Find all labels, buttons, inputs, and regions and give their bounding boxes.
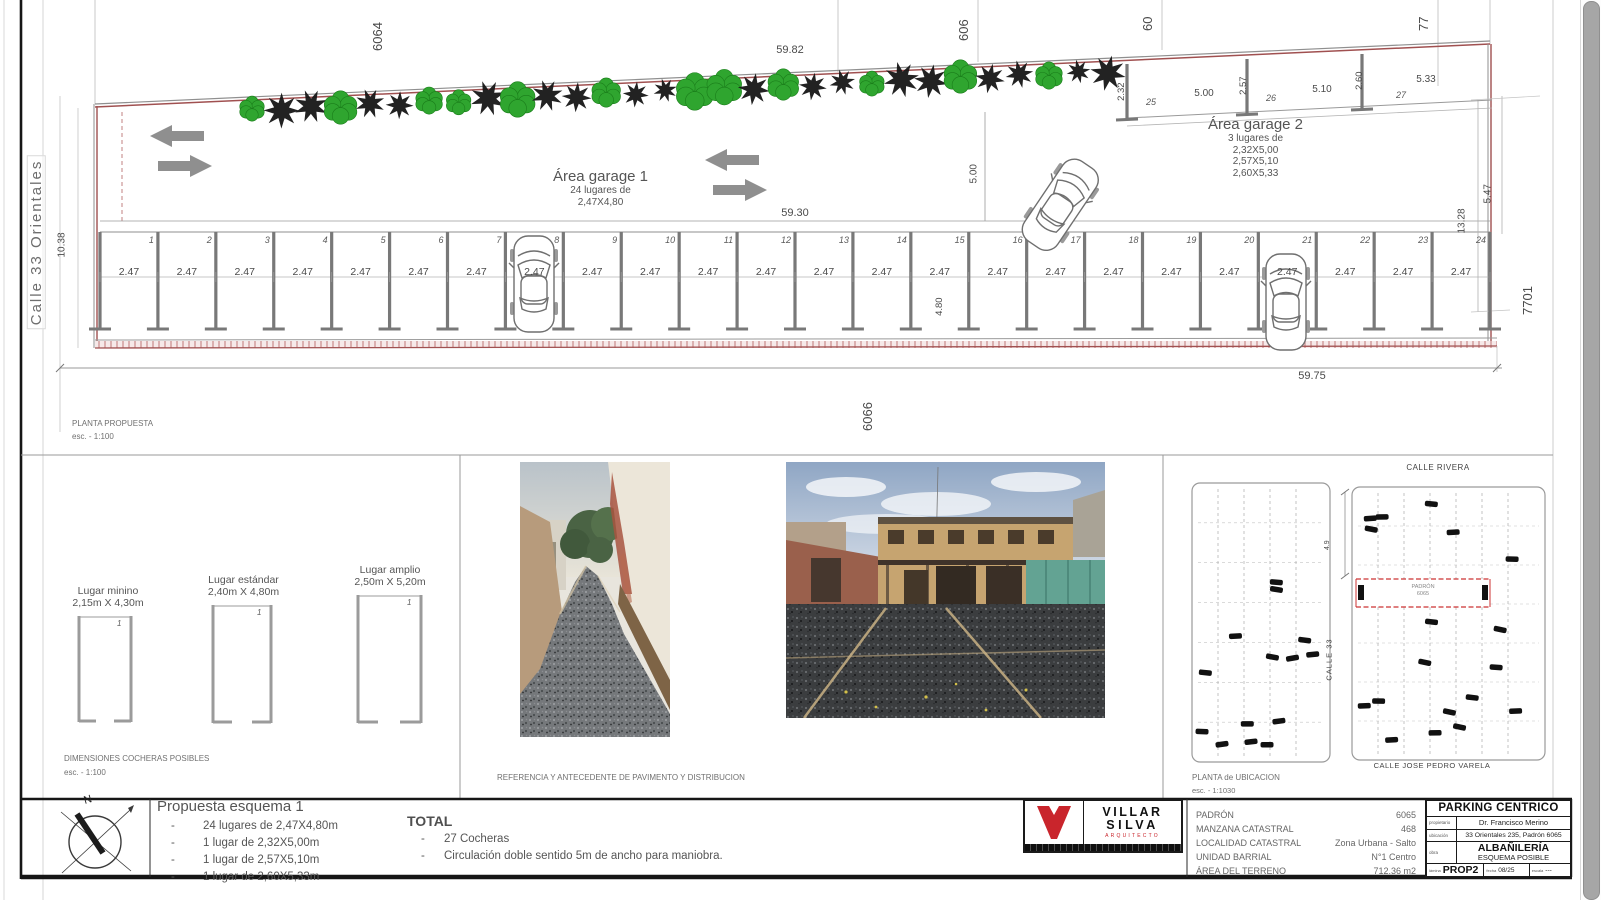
stall-number: 10 [659,235,675,245]
plan-sheet: 6064 606 60 77 7701 6066 59.82 59.30 59.… [0,0,1601,900]
plan-caption: PLANTA PROPUESTA [72,419,153,428]
neighbor-label: 77 [1417,16,1432,30]
logo-name-2: SILVA [1106,819,1158,832]
stall-width-label: 2.47 [1030,266,1082,278]
photos-caption: REFERENCIA Y ANTECEDENTE DE PAVIMENTO Y … [497,773,745,782]
stall-number: 2 [196,235,212,245]
dim-top: 59.82 [758,44,822,57]
scale-value: --- [1545,867,1552,874]
stall-width-label: 2.47 [1319,266,1371,278]
stall-number: 23 [1412,235,1428,245]
proposal-title: Propuesta esquema 1 [157,798,304,815]
work-line2: ESQUEMA POSIBLE [1478,854,1549,862]
stall-width-label: 2.47 [624,266,676,278]
stall-width-label: 2.47 [1146,266,1198,278]
street-label: Calle 33 Orientales [27,156,46,330]
cochera-min-label: Lugar minino 2,15m X 4,30m [58,585,158,609]
map-caption-scale: esc. - 1:1030 [1192,787,1235,796]
date-label: fecha [1486,868,1496,873]
stall-number: 27 [1396,90,1406,100]
stall-diagram-std [213,605,271,723]
neighbor-label: 7701 [1521,286,1536,315]
total-item: 27 Cocheras [444,833,509,846]
stall-number: 25 [1146,97,1156,107]
dim-bottom: 59.75 [1280,370,1344,383]
stall-number: 5 [370,235,386,245]
bullet-dash: - [171,820,175,833]
architect-logo: VILLAR SILVA ARQUITECTO [1023,799,1183,853]
scrollbar-track[interactable] [1580,0,1601,900]
stall-number: 16 [1007,235,1023,245]
stall-width-label: 2.47 [393,266,445,278]
stall-number: 6 [428,235,444,245]
photo-gravel-path [520,462,670,737]
proposal-item: 1 lugar de 2,32X5,00m [203,837,319,850]
dim-g2: 5.10 [1294,84,1350,96]
stall-width-label: 2.47 [1203,266,1255,278]
dim-g2: 2.60 [1355,71,1366,90]
proposal-item: 24 lugares de 2,47X4,80m [203,820,338,833]
scrollbar-thumb[interactable] [1583,1,1600,900]
map-street-bottom: CALLE JOSE PEDRO VARELA [1352,762,1512,771]
stall-number: 24 [1470,235,1486,245]
stall-width-label: 2.47 [103,266,155,278]
cocheras-caption: DIMENSIONES COCHERAS POSIBLES [64,754,209,763]
stall-marker: 1 [407,598,411,607]
logo-v-icon [1025,801,1083,844]
location-label: ubicación [1427,830,1457,842]
dim-g2: 2.57 [1239,76,1250,95]
stall-marker: 1 [117,619,121,628]
stall-width-label: 2.47 [914,266,966,278]
stall-marker: 1 [257,608,261,617]
map-caption: PLANTA de UBICACION [1192,773,1280,782]
stall-number: 9 [601,235,617,245]
stall-width-label: 2.47 [508,266,560,278]
garage1-label: Área garage 1 24 lugares de 2,47X4,80 [528,168,673,208]
dim-circulation: 5.00 [969,164,981,183]
stall-width-label: 2.47 [1088,266,1140,278]
cadastral-value: 6065 [1200,810,1416,820]
project-title: PARKING CENTRICO [1427,801,1570,817]
bullet-dash: - [421,850,425,863]
stall-width-label: 2.47 [335,266,387,278]
dim-row: 59.30 [763,207,827,220]
garage2-label: Área garage 2 3 lugares de 2,32X5,00 2,5… [1183,116,1328,179]
arrow-right-icon [158,155,212,177]
stall-number: 3 [254,235,270,245]
map-dim: 4.9 [1324,540,1332,550]
stall-number: 13 [833,235,849,245]
cadastral-value: N°1 Centro [1200,852,1416,862]
bullet-dash: - [171,871,175,884]
cochera-amp-label: Lugar amplio 2,50m X 5,20m [340,564,440,588]
bullet-dash: - [171,837,175,850]
map-parcel-label: PADRÓN [1398,584,1448,590]
sheet-label: lámina [1429,868,1441,873]
stall-width-label: 2.47 [451,266,503,278]
map-street-left: CALLE 33 [1325,638,1334,680]
logo-role: ARQUITECTO [1105,834,1160,839]
stall-number: 18 [1123,235,1139,245]
stall-width-label: 2.47 [740,266,792,278]
stall-width-label: 2.47 [1377,266,1429,278]
stall-number: 15 [949,235,965,245]
stall-number: 4 [312,235,328,245]
stall-width-label: 2.47 [277,266,329,278]
total-title: TOTAL [407,813,452,829]
stall-number: 1 [138,235,154,245]
bullet-dash: - [421,833,425,846]
stall-number: 26 [1266,93,1276,103]
tree-row [240,56,1126,129]
cadastral-value: 468 [1200,824,1416,834]
dim-right: 13.28 [1457,208,1469,233]
stall-number: 22 [1354,235,1370,245]
title-block: PARKING CENTRICO propietario Dr. Francis… [1425,799,1572,878]
stall-width-label: 2.47 [972,266,1024,278]
bullet-dash: - [171,854,175,867]
date-value: 08/25 [1498,867,1514,874]
logo-address-strip [1025,844,1181,851]
neighbor-label: 60 [1141,16,1156,30]
neighbor-label: 6064 [371,22,386,51]
stall-number: 11 [717,235,733,245]
stall-width-label: 2.47 [682,266,734,278]
map-parcel-number: 6065 [1398,591,1448,597]
stall-width-label: 2.47 [566,266,618,278]
stall-number: 12 [775,235,791,245]
location-value: 33 Orientales 235, Padrón 6065 [1457,830,1570,842]
cadastral-value: 712.36 m2 [1200,866,1416,876]
neighbor-label: 6066 [861,402,876,431]
stall-diagram-min [79,616,131,722]
cadastral-value: Zona Urbana - Salto [1200,838,1416,848]
neighbor-label: 606 [957,19,972,41]
dim-g2: 5.00 [1176,88,1232,100]
dim-right: 5.47 [1483,184,1495,203]
dim-left: 10.38 [57,232,69,257]
cochera-std-label: Lugar estándar 2,40m X 4,80m [196,574,291,598]
arrow-left-icon [150,125,204,147]
stall-number: 8 [543,235,559,245]
proposal-item: 1 lugar de 2,57X5,10m [203,854,319,867]
north-compass-icon [61,805,134,873]
dim-g2: 5.33 [1398,74,1454,86]
arrow-left-icon [705,149,759,171]
stall-width-label: 2.47 [161,266,213,278]
stall-number: 19 [1180,235,1196,245]
owner-value: Dr. Francisco Merino [1457,817,1570,829]
photo-yard [786,462,1105,718]
stall-number: 7 [485,235,501,245]
stall-diagram-amp [358,595,421,723]
stall-number: 17 [1065,235,1081,245]
stall-width-label: 2.47 [1435,266,1487,278]
work-label: obra [1427,842,1457,863]
proposal-item: 1 lugar de 2,60X5,33m [203,871,319,884]
stall-width-label: 2.47 [798,266,850,278]
car-stall-8 [509,236,559,332]
arrow-right-icon [713,179,767,201]
cocheras-caption-scale: esc. - 1:100 [64,768,106,777]
total-item: Circulación doble sentido 5m de ancho pa… [444,850,723,863]
stall-width-label: 2.47 [1261,266,1313,278]
stall-number: 20 [1238,235,1254,245]
stall-width-label: 2.47 [856,266,908,278]
stall-number: 14 [891,235,907,245]
sheet-code: PROP2 [1443,864,1479,876]
dim-depth: 4.80 [935,297,946,316]
dim-g2: 2.32 [1117,82,1128,101]
stall-number: 21 [1296,235,1312,245]
owner-label: propietario [1427,817,1457,829]
scale-label: escala [1532,868,1544,873]
stall-width-label: 2.47 [219,266,271,278]
map-street-top: CALLE RIVERA [1393,463,1483,472]
plan-caption-scale: esc. - 1:100 [72,432,114,441]
